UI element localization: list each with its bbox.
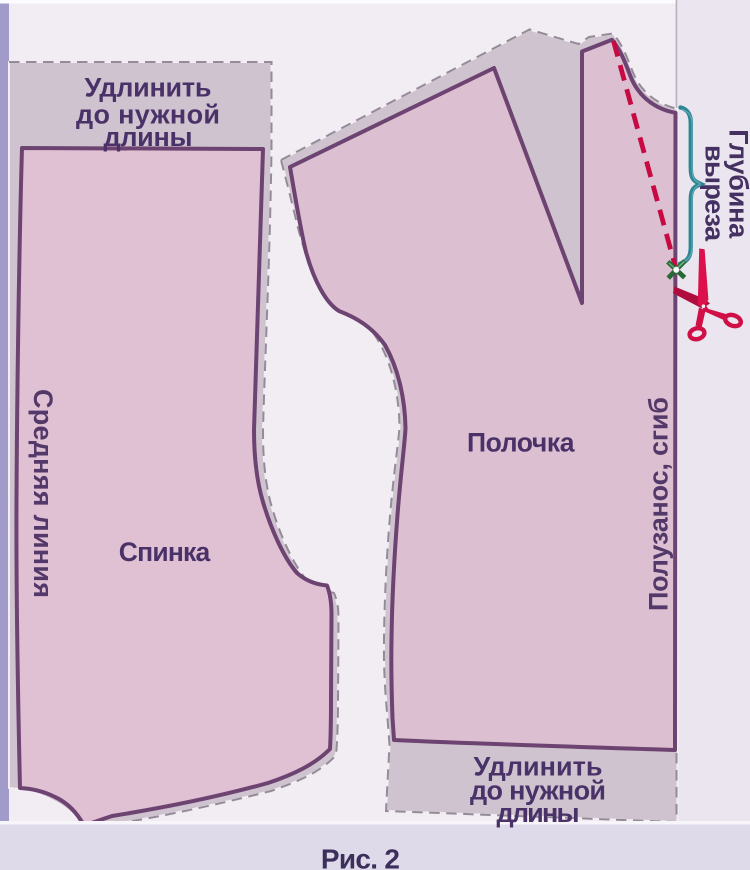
svg-text:Рис. 2: Рис. 2 xyxy=(321,844,400,870)
svg-text:Удлинить: Удлинить xyxy=(85,73,212,103)
svg-text:выреза: выреза xyxy=(700,145,730,242)
svg-text:длины: длины xyxy=(497,798,580,828)
svg-text:Спинка: Спинка xyxy=(119,537,211,567)
svg-text:Средняя линия: Средняя линия xyxy=(28,389,58,598)
svg-text:Полочка: Полочка xyxy=(467,428,575,458)
svg-text:длины: длины xyxy=(104,122,193,152)
svg-text:Полузанос, сгиб: Полузанос, сгиб xyxy=(644,397,674,611)
